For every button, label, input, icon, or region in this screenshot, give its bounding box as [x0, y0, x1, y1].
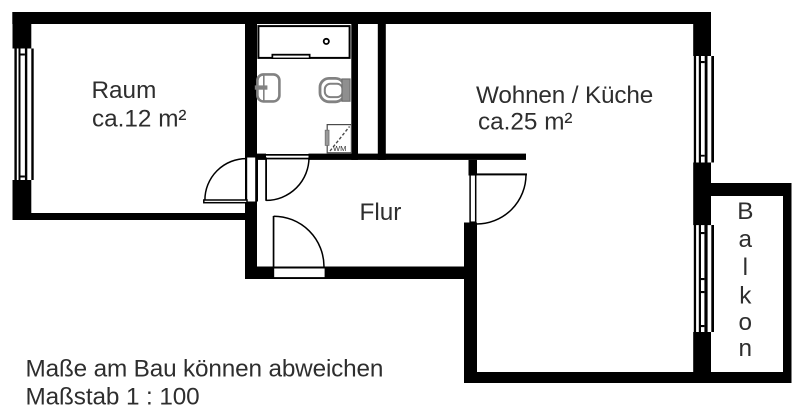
svg-text:Maßstab 1 : 100: Maßstab 1 : 100: [26, 384, 200, 411]
svg-text:n: n: [739, 335, 753, 362]
svg-text:k: k: [739, 283, 752, 310]
svg-text:Raum: Raum: [92, 77, 157, 104]
svg-text:o: o: [739, 309, 753, 336]
svg-text:Maße am Bau können abweichen: Maße am Bau können abweichen: [26, 356, 384, 383]
svg-text:l: l: [743, 254, 748, 281]
svg-text:WM: WM: [333, 144, 346, 153]
svg-text:Flur: Flur: [360, 199, 402, 226]
svg-text:ca.25 m²: ca.25 m²: [478, 109, 573, 136]
svg-text:a: a: [739, 226, 753, 253]
svg-text:B: B: [737, 198, 753, 225]
svg-text:Wohnen / Küche: Wohnen / Küche: [476, 82, 653, 109]
svg-text:ca.12 m²: ca.12 m²: [92, 106, 187, 133]
